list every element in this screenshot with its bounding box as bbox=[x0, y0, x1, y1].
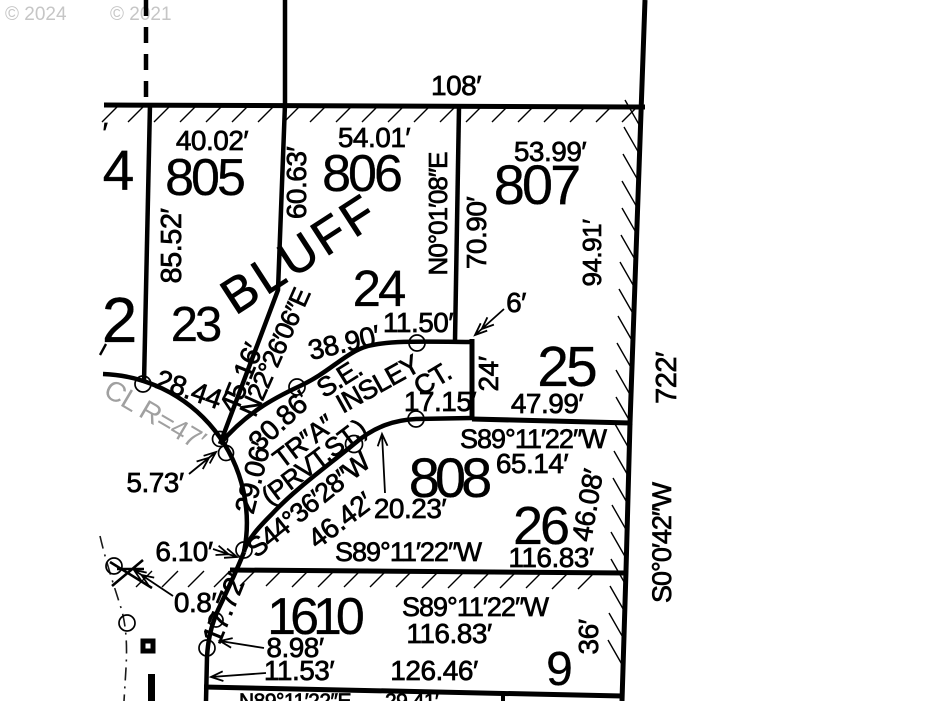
svg-text:© 2021: © 2021 bbox=[110, 4, 172, 25]
svg-text:S89°11′22″W: S89°11′22″W bbox=[335, 537, 483, 567]
svg-text:36′: 36′ bbox=[573, 619, 604, 654]
svg-text:85.52′: 85.52′ bbox=[156, 208, 188, 283]
svg-text:6′: 6′ bbox=[506, 287, 526, 318]
svg-text:116.83′: 116.83′ bbox=[406, 618, 492, 649]
svg-text:4: 4 bbox=[103, 139, 134, 203]
svg-text:29.41′: 29.41′ bbox=[385, 690, 439, 701]
svg-text:805: 805 bbox=[165, 149, 244, 207]
svg-text:60.63′: 60.63′ bbox=[281, 147, 312, 220]
svg-text:116.83′: 116.83′ bbox=[508, 542, 594, 573]
svg-text:© 2024: © 2024 bbox=[5, 4, 67, 25]
svg-text:9: 9 bbox=[546, 643, 571, 696]
svg-text:N0°01′08″E: N0°01′08″E bbox=[423, 152, 453, 276]
svg-text:722′: 722′ bbox=[651, 352, 683, 404]
svg-text:6.10′: 6.10′ bbox=[155, 536, 212, 567]
svg-text:70.90′: 70.90′ bbox=[461, 197, 492, 270]
svg-text:807: 807 bbox=[494, 153, 579, 216]
svg-text:0.8′: 0.8′ bbox=[174, 587, 216, 618]
svg-text:65.14′: 65.14′ bbox=[496, 448, 569, 479]
svg-text:126.46′: 126.46′ bbox=[390, 655, 478, 686]
svg-text:N89°11′22″E: N89°11′22″E bbox=[239, 690, 351, 701]
svg-text:47.99′: 47.99′ bbox=[511, 388, 584, 419]
svg-text:11.50′: 11.50′ bbox=[383, 307, 453, 338]
svg-text:11.53′: 11.53′ bbox=[264, 655, 334, 686]
svg-text:5.73′: 5.73′ bbox=[126, 467, 183, 498]
svg-text:808: 808 bbox=[409, 446, 490, 509]
svg-text:S0°0′42″W: S0°0′42″W bbox=[647, 482, 677, 603]
svg-text:94.91′: 94.91′ bbox=[577, 219, 607, 287]
svg-text:108′: 108′ bbox=[431, 70, 481, 101]
svg-text:23: 23 bbox=[171, 298, 221, 352]
svg-text:24′: 24′ bbox=[473, 356, 504, 391]
